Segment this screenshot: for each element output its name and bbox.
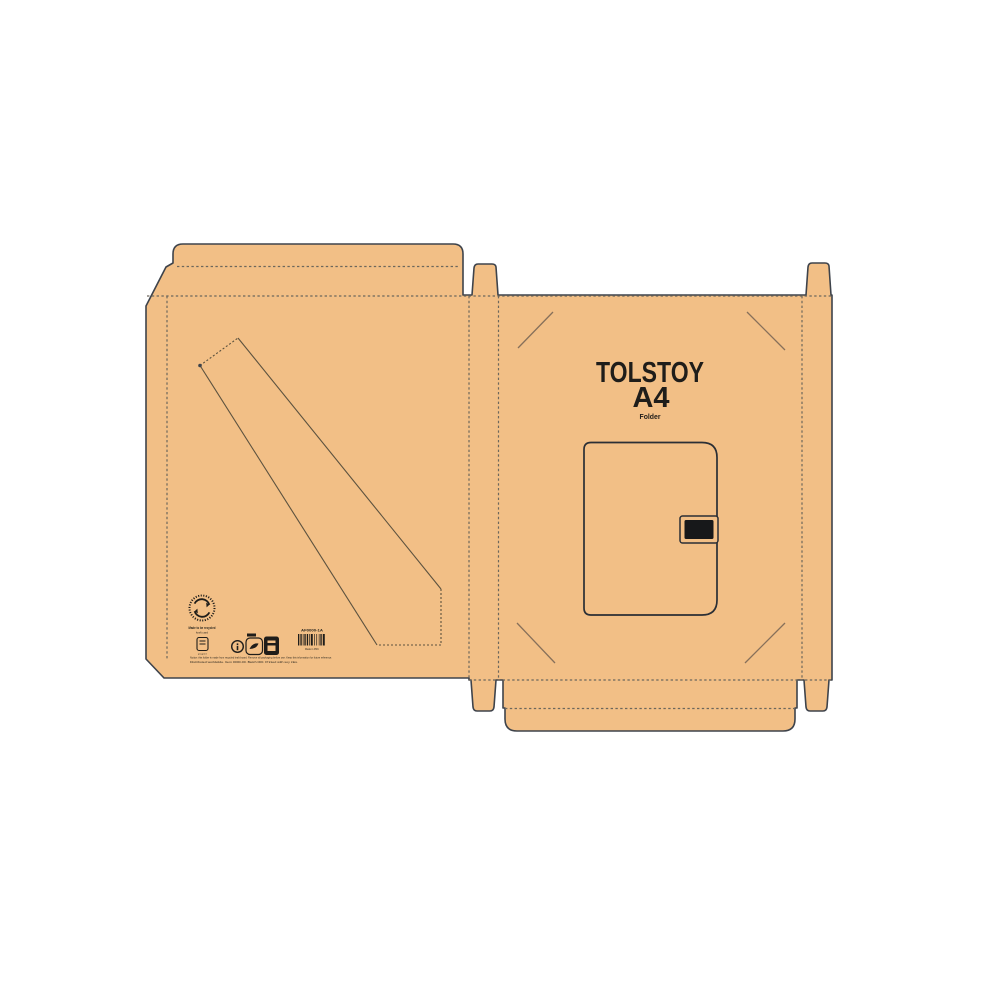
dieline-canvas: TOLSTOY A4 Folder Made to be recycled kr… (0, 0, 1000, 1000)
recycle-caption-line1: Made to be recycled (189, 626, 216, 630)
barcode-label: AF0000-1A (301, 629, 324, 633)
barcode-origin: Made in PRC (305, 647, 319, 651)
barcode-bar (298, 634, 299, 646)
black-badge-glyph-bottom (268, 646, 276, 652)
barcode-bar (319, 634, 320, 646)
recycle-caption-line2: kraft card (196, 631, 209, 635)
barcode-bar (323, 634, 325, 646)
barcode-bar (309, 634, 310, 646)
front-panel-size: A4 (633, 382, 670, 414)
pocket-pivot-dot (198, 364, 202, 368)
barcode-bar (300, 634, 301, 646)
barcode-bar (316, 634, 317, 646)
barcode-bar (304, 634, 305, 646)
barcode-bar (303, 634, 304, 646)
barcode-bar (311, 634, 313, 646)
barcode-bar (314, 634, 315, 646)
black-badge-glyph-top (268, 641, 276, 644)
microprint-line-2: Distributed worldwide. Item 0000-00. Bat… (190, 660, 298, 664)
badge-top-bar (247, 634, 256, 637)
dieline-svg: TOLSTOY A4 Folder Made to be recycled kr… (0, 0, 1000, 1000)
clasp-button-icon (685, 520, 714, 539)
front-panel-subtitle: Folder (640, 412, 661, 421)
barcode-bar (307, 634, 308, 646)
microprint-line-1: Notice: this folder is made from recycle… (190, 656, 332, 660)
barcode-bar (320, 634, 321, 646)
